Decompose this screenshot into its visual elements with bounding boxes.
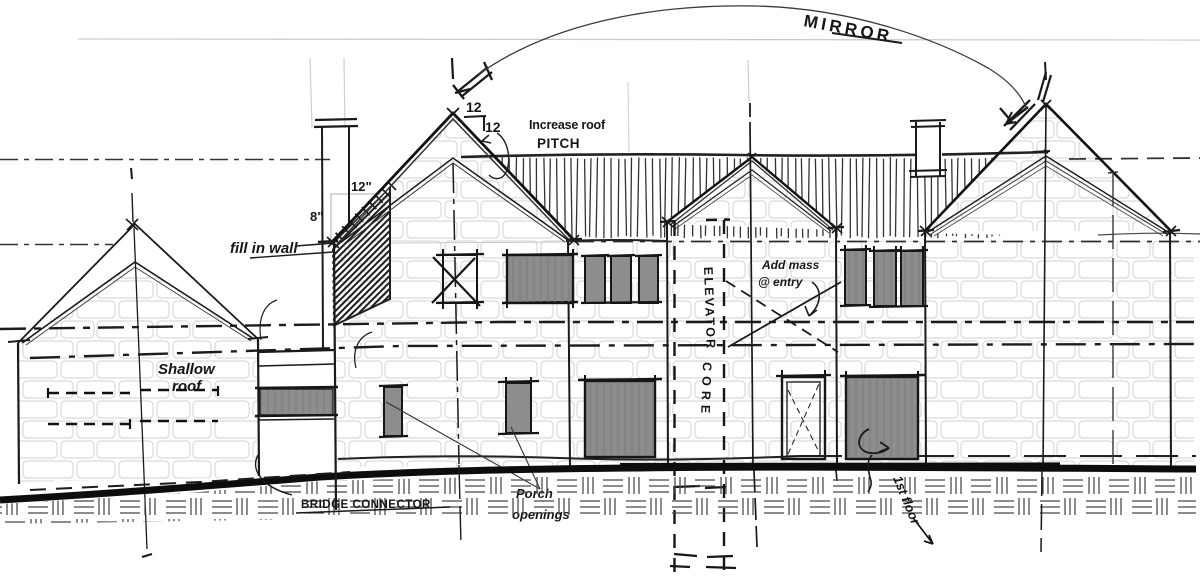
svg-text:@ entry: @ entry	[758, 275, 804, 289]
svg-text:12: 12	[466, 99, 482, 115]
svg-text:CORE: CORE	[698, 362, 714, 419]
svg-text:12": 12"	[351, 179, 372, 194]
svg-text:8": 8"	[310, 209, 323, 224]
svg-text:ELEVATOR: ELEVATOR	[701, 267, 718, 351]
svg-text:Increase roof: Increase roof	[529, 118, 606, 132]
svg-text:12: 12	[485, 119, 501, 135]
svg-text:PITCH: PITCH	[537, 136, 580, 151]
svg-text:roof: roof	[172, 378, 203, 395]
svg-text:fill in wall: fill in wall	[230, 240, 298, 257]
svg-text:Add mass: Add mass	[761, 258, 820, 272]
svg-text:Shallow: Shallow	[158, 361, 216, 378]
